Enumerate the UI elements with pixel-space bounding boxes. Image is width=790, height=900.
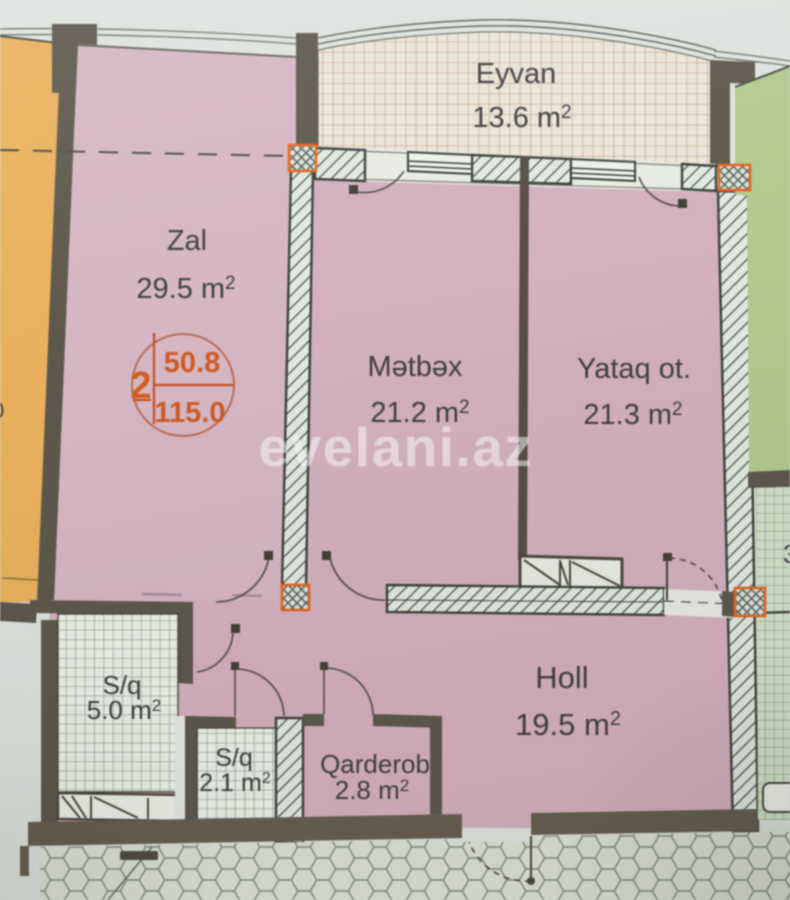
svg-text:Eyvan: Eyvan xyxy=(476,58,557,90)
svg-text:0: 0 xyxy=(0,398,4,423)
svg-text:2.1 m2: 2.1 m2 xyxy=(199,769,271,797)
svg-text:Yataq ot.: Yataq ot. xyxy=(577,353,691,385)
svg-text:Mətbəx: Mətbəx xyxy=(367,351,463,383)
svg-text:19.5 m2: 19.5 m2 xyxy=(515,707,621,742)
svg-text:2: 2 xyxy=(130,365,151,407)
svg-text:evelani.az: evelani.az xyxy=(259,416,534,478)
svg-text:13.6 m2: 13.6 m2 xyxy=(472,102,571,134)
svg-text:2.8 m2: 2.8 m2 xyxy=(335,775,410,805)
svg-text:Holl: Holl xyxy=(535,660,588,695)
svg-text:S/q: S/q xyxy=(215,744,253,772)
svg-text:115.0: 115.0 xyxy=(155,397,226,429)
svg-text:21.3 m2: 21.3 m2 xyxy=(583,399,682,431)
svg-text:3: 3 xyxy=(783,539,790,569)
svg-text:29.5 m2: 29.5 m2 xyxy=(136,273,235,305)
svg-text:Zal: Zal xyxy=(167,225,207,257)
svg-text:50.8: 50.8 xyxy=(164,347,220,379)
svg-text:5.0 m2: 5.0 m2 xyxy=(87,695,162,725)
